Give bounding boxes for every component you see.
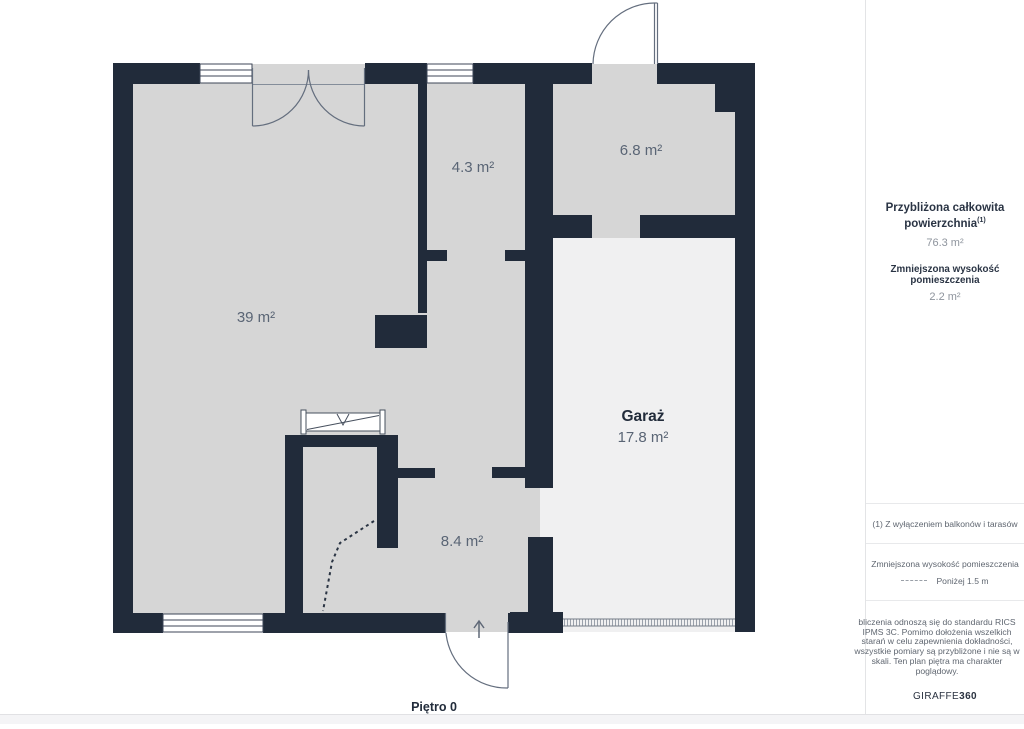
- window: [163, 614, 263, 632]
- floor-plan-drawing: 39 m² 4.3 m² 6.8 m² Garaż 17.8 m² 8.4 m²…: [0, 0, 862, 724]
- legend-item-label: Poniżej 1.5 m: [936, 576, 988, 586]
- footnote-text: (1) Z wyłączeniem balkonów i tarasów: [872, 519, 1017, 529]
- legend-title: Zmniejszona wysokość pomieszczenia: [871, 559, 1019, 569]
- room-area-garage: 17.8 m²: [618, 429, 669, 446]
- info-sidebar: Przybliżona całkowita powierzchnia(1) 76…: [865, 0, 1024, 714]
- garage-door-threshold: [540, 488, 553, 537]
- disclaimer-text: bliczenia odnoszą się do standardu RICS …: [850, 618, 1024, 676]
- room-area-hall-bottom: 8.4 m²: [441, 533, 484, 550]
- footnote-section: (1) Z wyłączeniem balkonów i tarasów: [866, 503, 1024, 543]
- giraffe360-logo: GIRAFFE360: [866, 691, 1024, 702]
- room-area-vestibule: 6.8 m²: [620, 142, 663, 159]
- total-area-value: 76.3 m²: [926, 237, 963, 249]
- stairs-icon: [301, 410, 385, 434]
- legend-section: Zmniejszona wysokość pomieszczenia Poniż…: [866, 543, 1024, 600]
- room-area-hall-top: 4.3 m²: [452, 159, 495, 176]
- dashed-line-icon: [901, 580, 927, 581]
- total-area-title: Przybliżona całkowita powierzchnia(1): [875, 200, 1015, 232]
- reduced-height-value: 2.2 m²: [929, 291, 960, 303]
- window: [200, 64, 252, 83]
- area-summary-section: Przybliżona całkowita powierzchnia(1) 76…: [866, 0, 1024, 503]
- room-name-garage: Garaż: [621, 408, 664, 425]
- floor-plan-canvas: 39 m² 4.3 m² 6.8 m² Garaż 17.8 m² 8.4 m²…: [0, 0, 862, 714]
- floor-name-label: Piętro 0: [411, 700, 457, 714]
- footnote-marker: (1): [977, 217, 986, 224]
- reduced-height-title: Zmniejszona wysokość pomieszczenia: [866, 264, 1024, 286]
- legend-item: Poniżej 1.5 m: [901, 576, 988, 586]
- bottom-status-strip: [0, 714, 1024, 724]
- disclaimer-section: bliczenia odnoszą się do standardu RICS …: [866, 600, 1024, 714]
- exterior-door-top: [593, 3, 658, 64]
- room-area-living: 39 m²: [237, 309, 275, 326]
- window: [427, 64, 473, 83]
